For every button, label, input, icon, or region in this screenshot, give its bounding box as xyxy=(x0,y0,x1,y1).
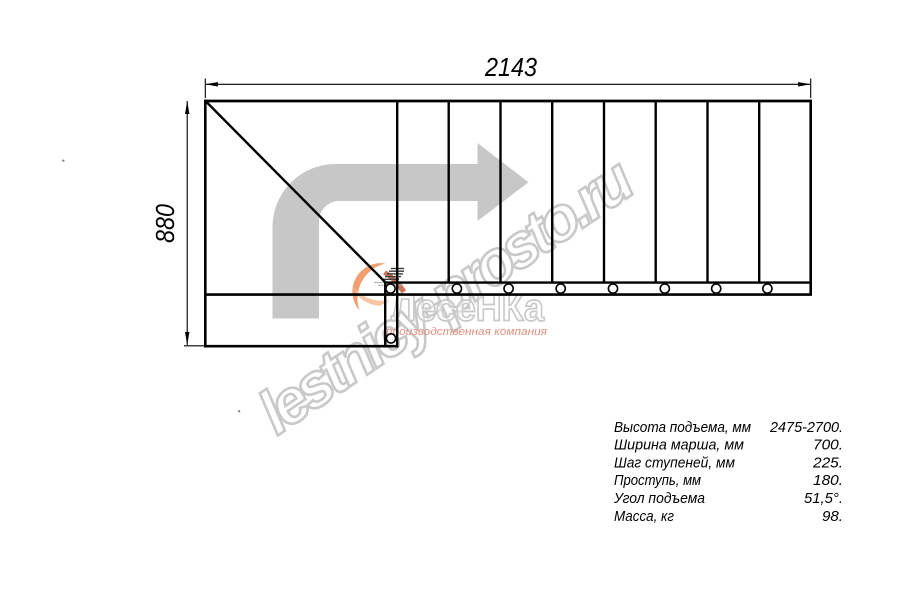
svg-text:51,5°.: 51,5°. xyxy=(804,490,843,507)
svg-text:2475-2700.: 2475-2700. xyxy=(769,419,843,436)
svg-text:2143: 2143 xyxy=(484,52,537,82)
svg-text:98.: 98. xyxy=(822,508,843,525)
svg-text:Высота подъема, мм: Высота подъема, мм xyxy=(614,419,751,436)
svg-text:Масса, кг: Масса, кг xyxy=(614,508,675,525)
svg-text:Ширина марша, мм: Ширина марша, мм xyxy=(614,437,744,454)
svg-text:700.: 700. xyxy=(813,437,843,454)
svg-text:Шаг ступеней, мм: Шаг ступеней, мм xyxy=(614,454,735,471)
svg-text:180.: 180. xyxy=(813,472,843,489)
svg-text:Проступь, мм: Проступь, мм xyxy=(614,472,701,489)
svg-text:225.: 225. xyxy=(812,454,843,471)
svg-text:880: 880 xyxy=(150,204,180,243)
svg-text:производственная компания: производственная компания xyxy=(386,326,547,338)
svg-text:Угол подъема: Угол подъема xyxy=(613,490,705,507)
